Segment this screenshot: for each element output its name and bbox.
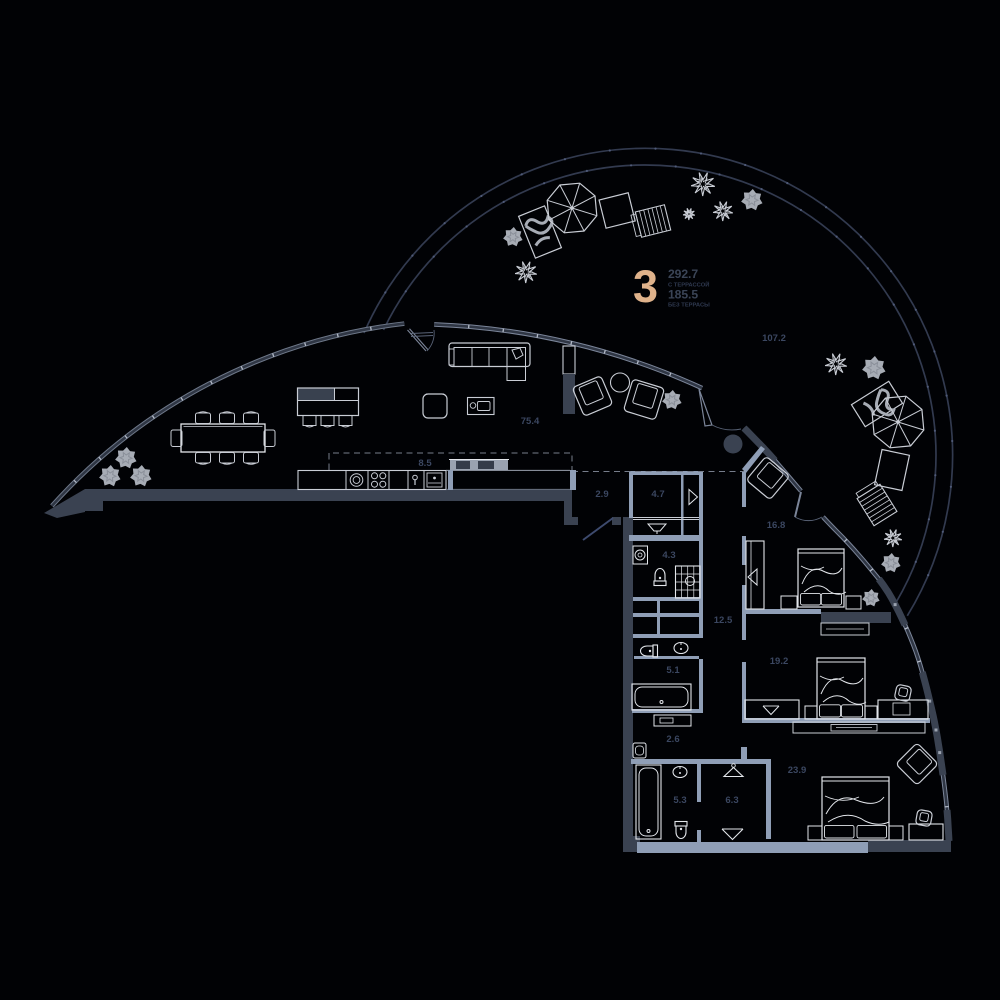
svg-text:107.2: 107.2 [762,333,786,344]
svg-text:2.6: 2.6 [666,734,679,745]
svg-text:185.5: 185.5 [668,288,698,302]
svg-text:4.3: 4.3 [662,550,675,561]
svg-text:3: 3 [633,261,658,312]
svg-text:19.2: 19.2 [770,656,789,667]
svg-text:4.7: 4.7 [651,489,664,500]
svg-text:292.7: 292.7 [668,267,698,281]
svg-text:16.8: 16.8 [767,520,786,531]
svg-text:23.9: 23.9 [788,765,807,776]
svg-text:12.5: 12.5 [714,615,733,626]
svg-text:8.5: 8.5 [418,458,432,469]
svg-text:5.1: 5.1 [666,665,680,676]
svg-text:75.4: 75.4 [521,416,540,427]
svg-text:2.9: 2.9 [595,489,608,500]
svg-text:6.3: 6.3 [725,795,738,806]
svg-text:5.3: 5.3 [673,795,686,806]
svg-text:БЕЗ ТЕРРАСЫ: БЕЗ ТЕРРАСЫ [668,303,710,309]
